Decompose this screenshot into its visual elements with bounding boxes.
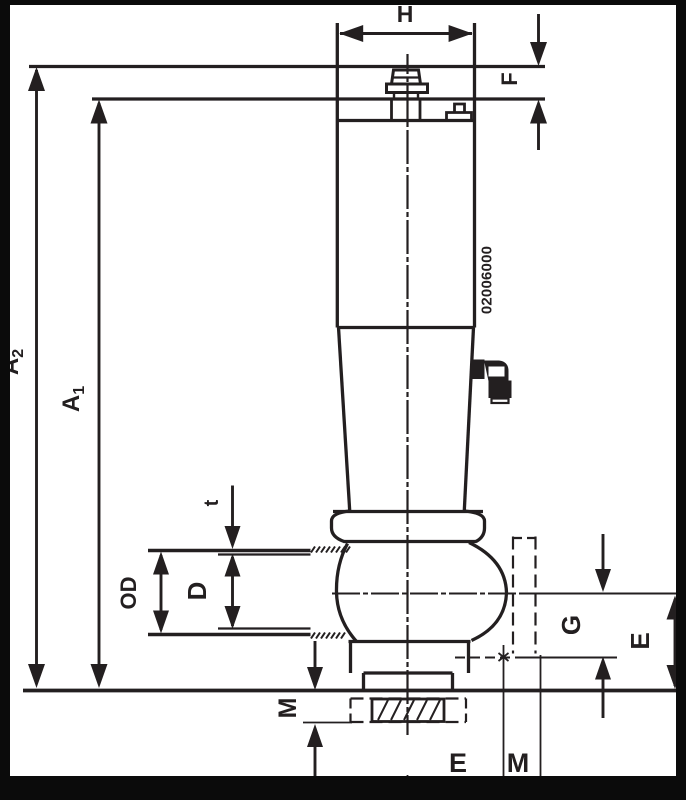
- svg-text:F: F: [497, 72, 522, 85]
- svg-text:02006000: 02006000: [479, 246, 496, 314]
- svg-text:t: t: [201, 499, 223, 506]
- svg-text:OD: OD: [116, 577, 141, 610]
- svg-text:E: E: [625, 632, 655, 649]
- svg-text:M: M: [274, 698, 302, 719]
- svg-text:D: D: [182, 582, 212, 601]
- svg-text:G: G: [556, 615, 586, 635]
- svg-text:E: E: [449, 748, 467, 778]
- svg-text:M: M: [507, 748, 530, 778]
